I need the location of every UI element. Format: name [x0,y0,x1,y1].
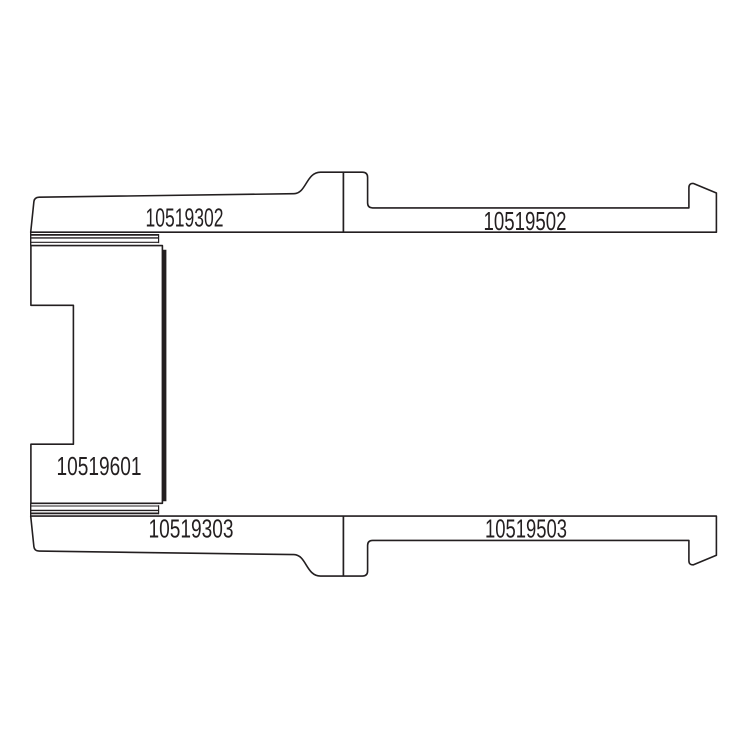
part-10519601-label[interactable]: 10519601 [57,451,142,481]
bottom-assembly: 10519303 10519503 [31,514,717,577]
part-10519302-10519502-outline [31,172,717,232]
part-10519503-label[interactable]: 10519503 [485,514,567,544]
top-assembly: 10519302 10519502 [31,172,717,236]
parts-diagram-canvas: 10519302 10519502 10519601 [0,0,750,750]
parts-diagram: 10519302 10519502 10519601 [0,0,750,750]
top-seal-band [31,232,159,245]
part-10519303-10519503-outline [31,516,717,576]
part-10519502-label[interactable]: 10519502 [484,206,567,236]
bottom-seal-band [31,503,159,516]
part-10519303-label[interactable]: 10519303 [149,514,234,544]
part-10519302-label[interactable]: 10519302 [146,203,224,233]
middle-part: 10519601 [31,246,165,504]
